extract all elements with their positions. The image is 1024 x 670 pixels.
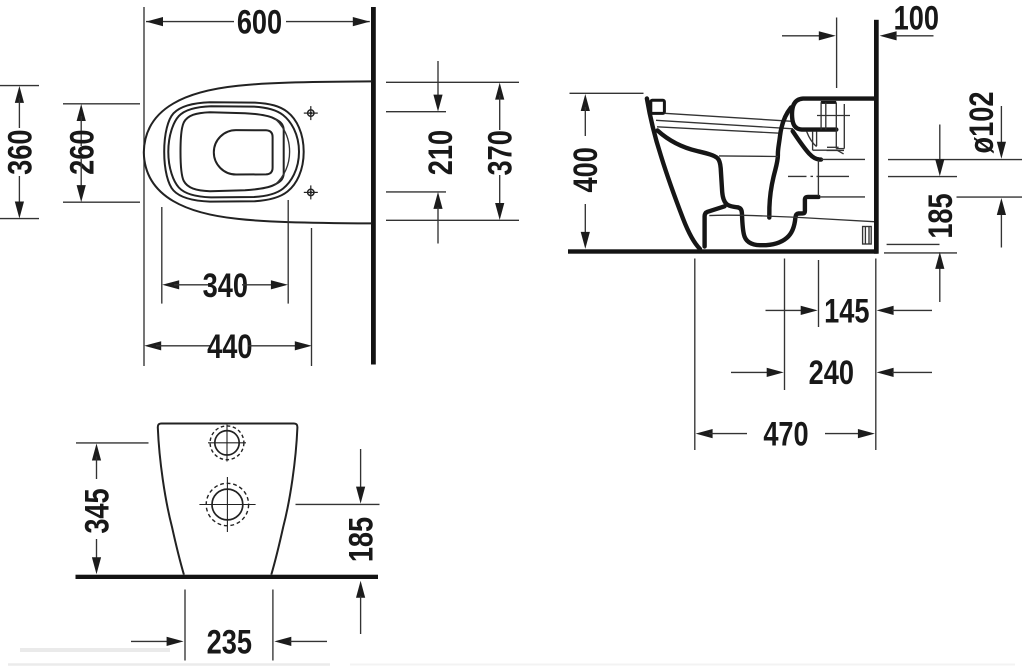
svg-text:240: 240: [809, 353, 854, 392]
svg-text:360: 360: [1, 130, 40, 175]
svg-text:145: 145: [824, 292, 869, 331]
svg-text:470: 470: [763, 414, 808, 453]
svg-text:210: 210: [421, 130, 460, 175]
svg-text:600: 600: [237, 3, 282, 42]
svg-text:100: 100: [894, 0, 939, 37]
svg-text:185: 185: [341, 517, 380, 562]
svg-text:185: 185: [921, 193, 960, 238]
svg-text:370: 370: [481, 130, 520, 175]
svg-text:235: 235: [207, 622, 252, 661]
svg-text:400: 400: [566, 147, 605, 192]
svg-text:ø102: ø102: [962, 92, 1001, 154]
svg-text:440: 440: [207, 327, 252, 366]
svg-text:345: 345: [77, 488, 116, 533]
svg-text:340: 340: [203, 266, 248, 305]
